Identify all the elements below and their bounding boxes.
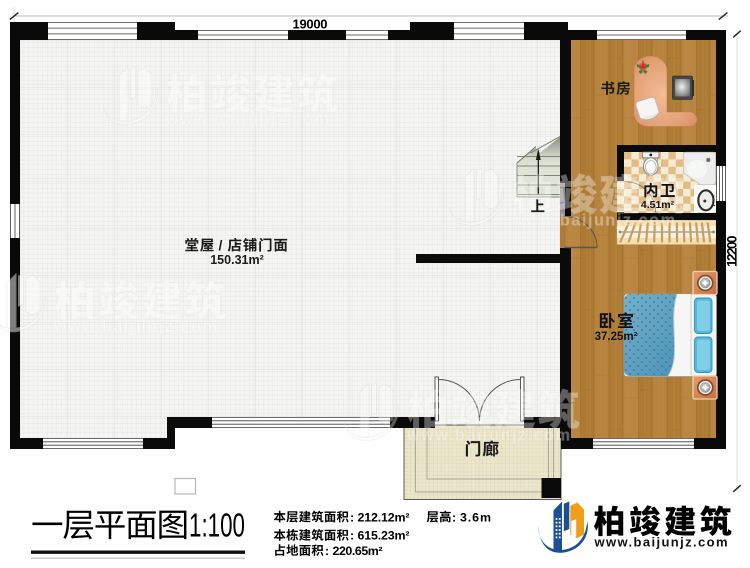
- svg-text:/: /: [219, 237, 223, 253]
- svg-text::: :: [350, 510, 354, 524]
- svg-text:212.12m²: 212.12m²: [358, 510, 410, 524]
- svg-text:37.25m²: 37.25m²: [595, 331, 638, 343]
- svg-text::: :: [350, 529, 354, 543]
- svg-text:615.23m²: 615.23m²: [358, 529, 410, 543]
- svg-text:220.65m²: 220.65m²: [333, 544, 383, 558]
- svg-text:www.baijunjz.com: www.baijunjz.com: [594, 535, 729, 550]
- svg-text:12200: 12200: [724, 236, 739, 268]
- svg-text:4.51m²: 4.51m²: [641, 199, 675, 211]
- svg-text:19000: 19000: [293, 17, 328, 32]
- svg-text::: :: [325, 544, 329, 558]
- svg-text:1:100: 1:100: [189, 507, 245, 544]
- svg-text::: :: [452, 510, 456, 524]
- svg-text:150.31m²: 150.31m²: [210, 253, 264, 267]
- svg-text:3.6m: 3.6m: [460, 510, 491, 524]
